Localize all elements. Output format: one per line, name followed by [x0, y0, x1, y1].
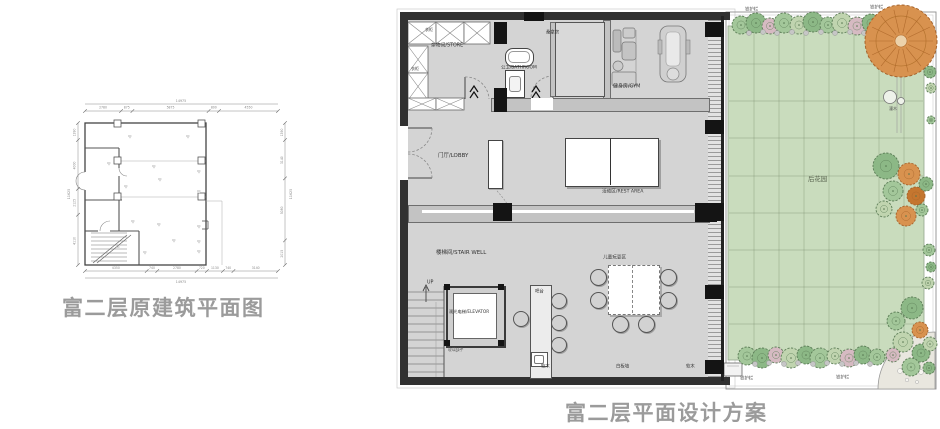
column: [705, 285, 724, 299]
svg-text:2015: 2015: [280, 250, 284, 258]
svg-text:5080: 5080: [280, 206, 284, 214]
bar-stool: [551, 337, 567, 353]
entry-door-opening: [400, 126, 408, 180]
room-label-stair-well: 楼梯间/STAIR WELL: [436, 250, 486, 256]
svg-text:4000: 4000: [73, 161, 77, 169]
column: [705, 360, 724, 374]
room-label-bathroom: 公卫/BATHROOM: [501, 65, 537, 70]
design-plan-title: 富二层平面设计方案: [565, 397, 768, 427]
column: [494, 22, 507, 44]
bar-stool: [551, 315, 567, 331]
svg-text:2780: 2780: [99, 106, 107, 110]
room-label-lobby: 门厅/LOBBY: [438, 153, 468, 159]
corridor-wall: [491, 98, 710, 112]
kids-table: [608, 265, 660, 315]
column: [695, 203, 717, 222]
room-label-wardrobe-top: 衣柜: [425, 28, 433, 32]
note-glass-railing: 玻璃扶手: [448, 348, 463, 352]
window-glazing: [721, 16, 724, 381]
label-cork-left: 软木: [541, 364, 550, 369]
sauna-room: [555, 22, 605, 97]
kids-chair: [590, 292, 607, 309]
column: [705, 120, 724, 134]
svg-text:5875: 5875: [167, 106, 175, 110]
bathtub-inner: [508, 51, 530, 63]
room-label-storage: 杂物间/STORE: [431, 43, 463, 48]
bath-door-opening: [531, 98, 553, 110]
room-label-sauna: 桑拿房: [546, 30, 559, 35]
svg-text:1390: 1390: [280, 129, 284, 137]
wall-bottom: [400, 377, 730, 385]
svg-text:875: 875: [124, 106, 130, 110]
svg-text:740: 740: [149, 266, 155, 270]
svg-text:2780: 2780: [173, 266, 181, 270]
bar-stool: [513, 311, 529, 327]
label-up: UP: [427, 280, 433, 285]
svg-text:4550: 4550: [245, 106, 253, 110]
page-root: 2780875587580045501497543507402780720113…: [0, 0, 940, 429]
room-label-wardrobe-left: 衣柜: [411, 67, 419, 71]
console-table: [488, 140, 503, 189]
kids-chair: [590, 269, 607, 286]
svg-text:4350: 4350: [112, 266, 120, 270]
kids-chair: [660, 292, 677, 309]
label-bar: 吧台: [535, 289, 544, 294]
svg-text:1130: 1130: [211, 266, 219, 270]
column: [493, 203, 512, 221]
label-shrub: 灌木: [889, 107, 897, 111]
kids-chair: [660, 269, 677, 286]
label-fence-bottom-right: 铁护栏: [836, 375, 849, 380]
kids-chair: [612, 316, 629, 333]
svg-text:3140: 3140: [280, 156, 284, 164]
room-label-gym: 健身房/GYM: [613, 84, 640, 89]
kids-table-centerline: [632, 265, 633, 313]
column: [705, 22, 724, 37]
rest-area-tables: [565, 138, 659, 187]
svg-text:720: 720: [199, 266, 205, 270]
label-fence-top-left: 铁护栏: [745, 7, 758, 12]
svg-text:11625: 11625: [289, 189, 293, 200]
svg-text:2125: 2125: [73, 199, 77, 207]
window-wall-hatch: [708, 20, 721, 377]
svg-text:14975: 14975: [176, 99, 187, 103]
label-fence-bottom-left: 铁护栏: [740, 376, 753, 381]
svg-text:3140: 3140: [252, 266, 260, 270]
table-divider: [610, 138, 611, 185]
room-label-rest-area: 活动区/REST AREA: [602, 189, 643, 194]
svg-text:4110: 4110: [73, 237, 77, 245]
svg-text:800: 800: [211, 106, 217, 110]
toilet-bowl: [509, 76, 521, 92]
mid-wall-slit: [422, 210, 694, 213]
svg-text:11625: 11625: [67, 189, 71, 200]
column: [494, 88, 507, 112]
wall-segment: [524, 12, 544, 21]
wall-left: [400, 12, 408, 385]
elevator-cab: [453, 293, 497, 339]
kids-chair: [638, 316, 655, 333]
mid-wall-band: [408, 205, 710, 223]
room-label-kids-area: 儿童玩耍区: [603, 255, 626, 260]
original-plan-title: 富二层原建筑平面图: [62, 292, 265, 322]
label-fence-top-right: 铁护栏: [870, 5, 883, 10]
svg-text:14975: 14975: [176, 280, 187, 284]
wall-top: [400, 12, 730, 20]
label-cork-right: 软木: [686, 364, 695, 369]
label-back-garden: 后花园: [808, 176, 827, 183]
room-label-elevator: 观光电梯/ELEVATOR: [449, 310, 489, 314]
svg-text:740: 740: [225, 266, 231, 270]
svg-text:1390: 1390: [73, 129, 77, 137]
label-whiteboard: 白板墙: [616, 364, 629, 369]
bar-stool: [551, 293, 567, 309]
